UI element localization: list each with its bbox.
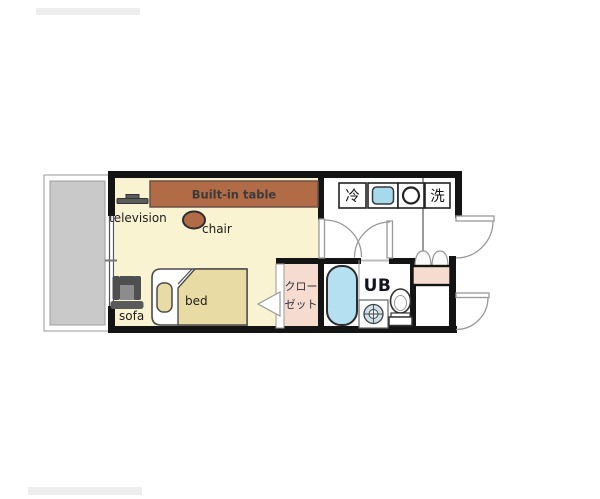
entry-shelf [413,266,451,285]
sofa-arm-right [134,276,142,300]
scan-artifact-bottom [28,487,142,495]
bed-pillow [157,283,172,312]
tv-screen [117,199,148,204]
bifold-door-right [432,251,448,267]
sofa-arm-left [113,276,121,300]
entrance-door-arc [456,221,493,258]
sofa-back [120,276,134,285]
balcony [44,175,110,331]
floor-plan-drawing: 冷 洗 クロー ゼット UB [0,0,600,499]
meter-door-leaf [456,293,489,298]
wall-room-kitchen [318,171,324,220]
balcony-floor [50,181,105,325]
toilet-bowl-icon [391,289,411,313]
room-door-leaf [319,219,325,258]
refrigerator-label: 冷 [345,188,360,205]
sink-icon [373,187,394,204]
toilet-tank [389,317,412,326]
meter-door-arc [456,298,488,330]
bathroom-door-leaf [387,221,393,258]
stove-burner-icon [403,188,419,204]
wall-left-upper [108,171,115,216]
washer-label: 洗 [430,188,445,205]
closet-label-line1: クロー [285,280,318,293]
sofa-icon [111,276,144,309]
closet-floor [282,260,322,328]
sofa-seat [120,285,134,300]
floor-plan-page: 冷 洗 クロー ゼット UB [0,0,600,499]
bed-label: bed [185,294,208,308]
window-center-tick [105,260,117,262]
television-label: television [109,211,167,225]
scan-artifact-top [36,8,140,15]
tv-stand [126,195,139,199]
bathroom-door-threshold [361,260,389,262]
bifold-door-left [415,251,431,267]
wall-top [108,171,462,178]
built-in-table-label: Built-in table [192,188,277,202]
kitchen-counter: 冷 洗 [339,183,450,208]
chair-label: chair [202,222,232,236]
wall-right-upper [455,171,462,218]
closet-label-line2: ゼット [285,298,318,311]
wall-closet-bath [318,258,324,333]
sofa-label: sofa [119,309,144,323]
bathtub-icon [327,266,357,325]
sofa-ottoman [111,301,144,309]
entrance-door-leaf [456,216,494,221]
unit-bath-label: UB [364,276,392,296]
